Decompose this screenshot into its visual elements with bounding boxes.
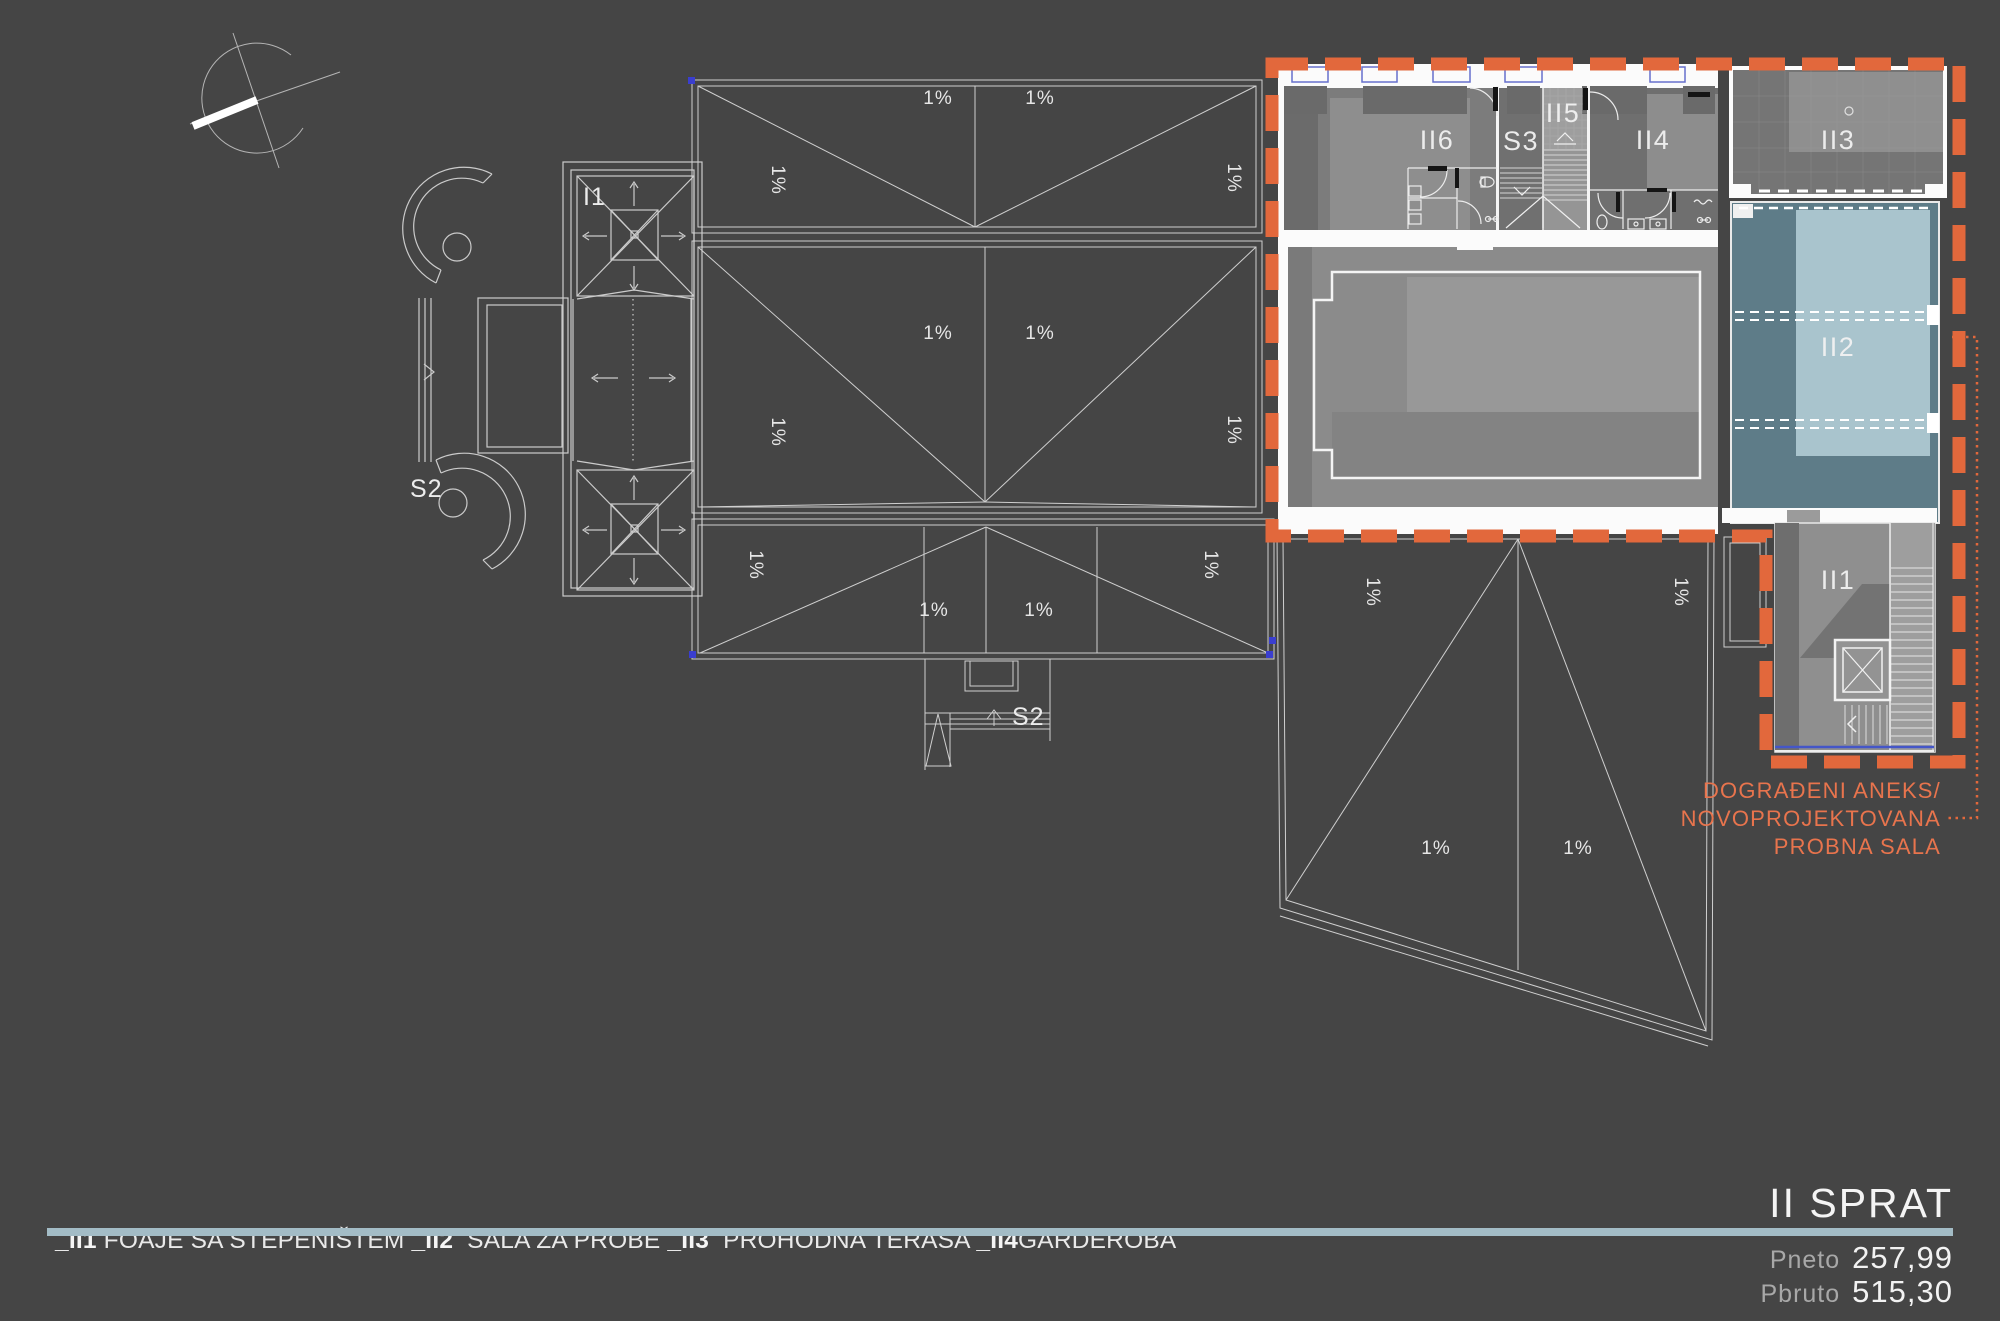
ii1-foyer-block xyxy=(1722,508,1937,752)
skylight-tower-south xyxy=(577,470,694,590)
stair-s2-west-label: S2 xyxy=(410,475,443,503)
slope-label: 1% xyxy=(923,88,952,109)
ii2-rehearsal-hall-block xyxy=(1731,202,1939,531)
slope-label: 1% xyxy=(923,323,952,344)
annex-note-line3: PROBNA SALA xyxy=(1774,834,1941,859)
slope-label: 1% xyxy=(767,165,788,194)
slope-label: 1% xyxy=(919,600,948,621)
slope-label: 1% xyxy=(1362,577,1383,606)
southeast-roof-linework xyxy=(1277,533,1766,1046)
west-wing-linework xyxy=(403,162,702,596)
area-row-neto: Pneto 257,99 xyxy=(1761,1240,1954,1274)
room-label-ii5: II5 xyxy=(1546,98,1581,128)
area-value: 515,30 xyxy=(1852,1274,1953,1310)
floor-plan-sheet: I1 S2 1% 1% 1% 1% 1% 1% 1% 1% 1% 1% 1% 1… xyxy=(0,0,2000,1321)
stair-s2-south-label: S2 xyxy=(1012,703,1045,731)
slope-label: 1% xyxy=(1670,577,1691,606)
slope-label: 1% xyxy=(1025,323,1054,344)
area-label: Pbruto xyxy=(1761,1280,1841,1309)
slope-label: 1% xyxy=(1421,838,1450,859)
floor-plan-canvas: I1 S2 1% 1% 1% 1% 1% 1% 1% 1% 1% 1% 1% 1… xyxy=(0,0,2000,1321)
slope-label: 1% xyxy=(1025,88,1054,109)
annex-note-line1: DOGRAĐENI ANEKS/ xyxy=(1703,778,1941,803)
area-value: 257,99 xyxy=(1852,1240,1953,1276)
slope-label: 1% xyxy=(745,550,766,579)
north-arrow-icon xyxy=(190,33,340,168)
stair-s3-label: S3 xyxy=(1503,126,1539,156)
annex-note-line2: NOVOPROJEKTOVANA xyxy=(1681,806,1941,831)
room-label-ii4: II4 xyxy=(1636,125,1671,155)
area-label: Pneto xyxy=(1770,1246,1840,1275)
legend: _II1 FOAJE SA STEPENIŠTEM _II2 SALA ZA P… xyxy=(55,1158,1176,1321)
slope-label: 1% xyxy=(1200,550,1221,579)
slope-label: 1% xyxy=(767,417,788,446)
main-hall xyxy=(1288,242,1718,507)
room-label-ii2: II2 xyxy=(1821,332,1856,362)
divider-rule xyxy=(47,1228,1953,1236)
room-label-ii6: II6 xyxy=(1420,125,1455,155)
slope-label: 1% xyxy=(1223,163,1244,192)
slope-label: 1% xyxy=(1563,838,1592,859)
area-row-bruto: Pbruto 515,30 xyxy=(1761,1274,1954,1308)
reference-markers xyxy=(688,77,1276,658)
area-summary: Pneto 257,99 Pbruto 515,30 xyxy=(1761,1240,1954,1308)
room-label-ii3: II3 xyxy=(1821,125,1856,155)
slope-label: 1% xyxy=(1223,415,1244,444)
sheet-title: II SPRAT xyxy=(1769,1180,1953,1227)
room-label-ii1: II1 xyxy=(1821,565,1856,595)
tower-label: I1 xyxy=(583,183,606,211)
slope-label: 1% xyxy=(1024,600,1053,621)
